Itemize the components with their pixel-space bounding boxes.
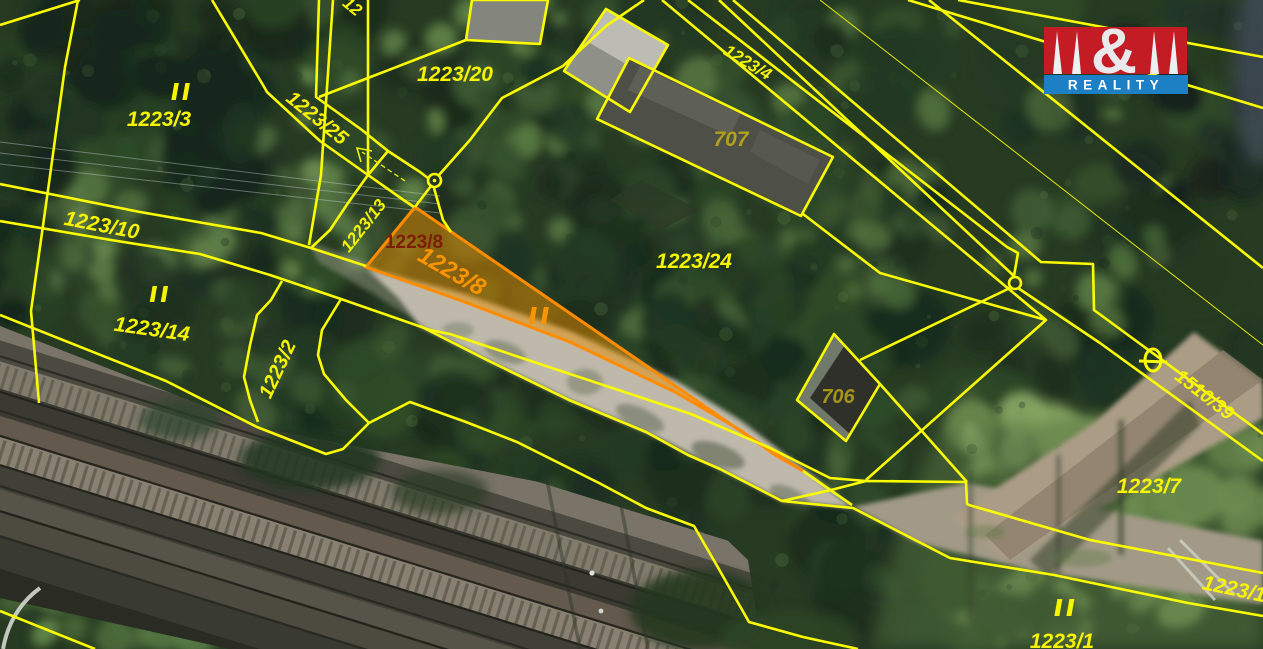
svg-text:707: 707 (713, 128, 749, 151)
svg-text:1223/20: 1223/20 (417, 63, 493, 86)
svg-text:1223/3: 1223/3 (127, 108, 192, 131)
svg-text:1223/24: 1223/24 (656, 250, 732, 273)
svg-text:REALITY: REALITY (1068, 78, 1164, 93)
svg-text:706: 706 (821, 386, 855, 408)
svg-text:1223/7: 1223/7 (1117, 475, 1183, 498)
svg-text:1223/1: 1223/1 (1030, 630, 1094, 649)
